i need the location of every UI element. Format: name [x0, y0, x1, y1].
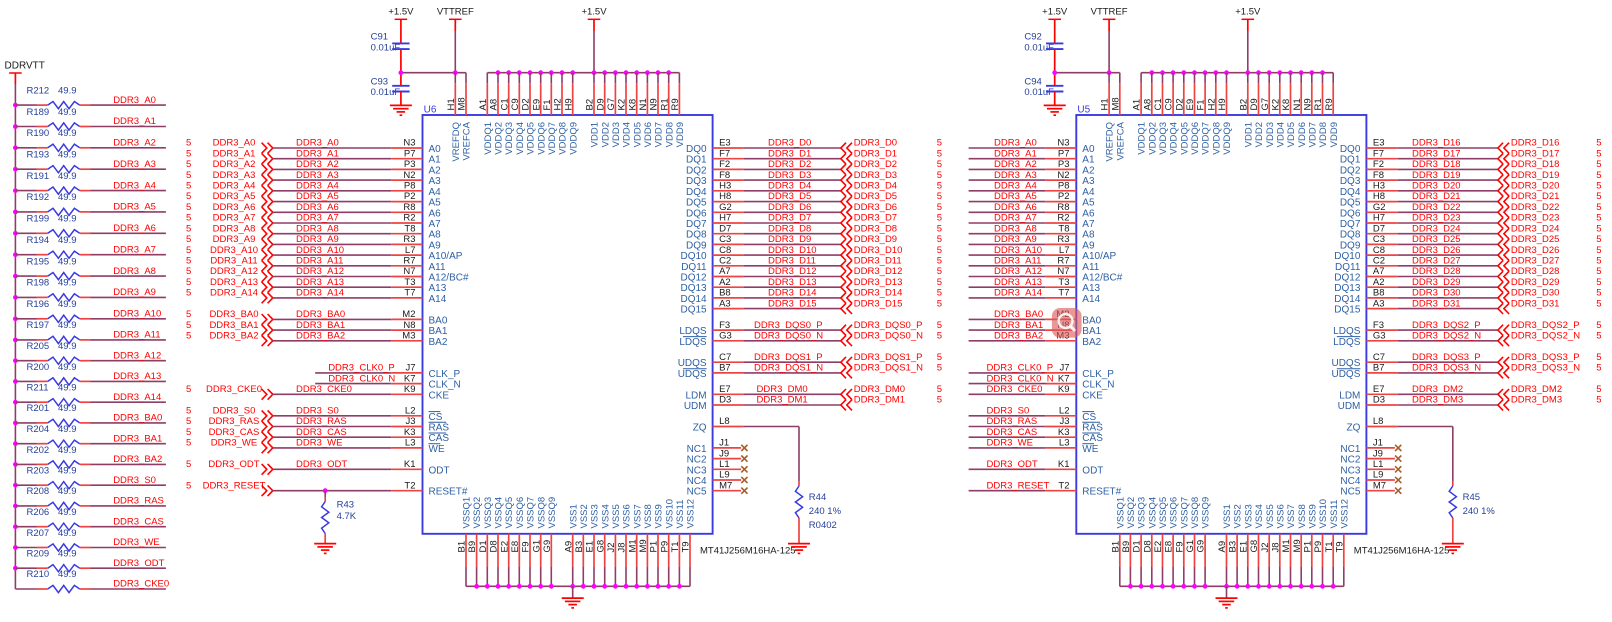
- svg-text:VDDQ6: VDDQ6: [536, 122, 547, 155]
- svg-text:R200: R200: [27, 362, 50, 373]
- svg-text:DDR3_CLK0_P: DDR3_CLK0_P: [987, 363, 1054, 374]
- svg-text:M1: M1: [1281, 539, 1292, 552]
- svg-text:DDR3_DQS2_N: DDR3_DQS2_N: [1511, 331, 1580, 342]
- svg-text:H2: H2: [1206, 98, 1217, 110]
- svg-text:A14: A14: [1082, 294, 1100, 305]
- svg-text:R195: R195: [27, 256, 50, 267]
- svg-text:DQ10: DQ10: [680, 251, 707, 262]
- svg-text:DDR3_DQS0_N: DDR3_DQS0_N: [854, 331, 923, 342]
- svg-text:VDD7: VDD7: [1307, 122, 1318, 147]
- svg-text:A2: A2: [1373, 277, 1385, 288]
- svg-text:5: 5: [186, 213, 191, 224]
- svg-text:R45: R45: [1463, 492, 1480, 503]
- svg-text:DDR3_A7: DDR3_A7: [296, 213, 339, 224]
- svg-text:A6: A6: [1082, 208, 1095, 219]
- svg-text:R44: R44: [809, 492, 826, 503]
- svg-text:DDR3_D10: DDR3_D10: [854, 245, 903, 256]
- svg-text:VSSQ5: VSSQ5: [504, 497, 515, 529]
- svg-text:DDR3_A1: DDR3_A1: [994, 148, 1037, 159]
- svg-text:A9: A9: [563, 541, 574, 553]
- svg-text:DDR3_DM1: DDR3_DM1: [757, 395, 808, 406]
- svg-text:DDR3_A0: DDR3_A0: [296, 138, 339, 149]
- svg-text:5: 5: [186, 223, 191, 234]
- svg-text:CKE: CKE: [429, 390, 450, 401]
- svg-text:5: 5: [186, 234, 191, 245]
- svg-text:L1: L1: [1373, 459, 1384, 470]
- svg-text:ODT: ODT: [1082, 465, 1103, 476]
- svg-text:DQ3: DQ3: [1340, 176, 1361, 187]
- svg-text:P8: P8: [404, 181, 416, 192]
- svg-text:DDR3_A13: DDR3_A13: [994, 277, 1042, 288]
- svg-text:F7: F7: [1373, 148, 1384, 159]
- svg-text:DQ11: DQ11: [1335, 262, 1361, 273]
- svg-text:DDR3_D27: DDR3_D27: [1511, 256, 1560, 267]
- svg-text:K9: K9: [1058, 384, 1070, 395]
- svg-text:DDR3_BA1: DDR3_BA1: [994, 320, 1043, 331]
- svg-text:A0: A0: [429, 144, 442, 155]
- svg-text:VSS2: VSS2: [1233, 504, 1244, 528]
- svg-text:B2: B2: [1238, 99, 1249, 111]
- svg-text:DDR3_A7: DDR3_A7: [994, 213, 1037, 224]
- svg-text:DQ6: DQ6: [686, 208, 707, 219]
- svg-text:VSS8: VSS8: [1297, 504, 1308, 528]
- svg-text:R196: R196: [27, 299, 50, 310]
- svg-text:P9: P9: [1313, 541, 1324, 553]
- svg-text:5: 5: [1596, 288, 1601, 299]
- svg-text:5: 5: [937, 202, 942, 213]
- svg-text:5: 5: [937, 352, 942, 363]
- svg-text:RAS: RAS: [1082, 423, 1103, 434]
- svg-text:DDR3_D31: DDR3_D31: [1412, 298, 1461, 309]
- svg-text:E3: E3: [719, 138, 731, 149]
- svg-text:G1: G1: [531, 540, 542, 553]
- svg-text:DDR3_D13: DDR3_D13: [854, 277, 903, 288]
- svg-text:A11: A11: [429, 262, 446, 273]
- svg-text:F2: F2: [719, 159, 730, 170]
- svg-text:DDR3_BA0: DDR3_BA0: [296, 309, 345, 320]
- svg-text:BA1: BA1: [1082, 326, 1101, 337]
- svg-text:T9: T9: [681, 541, 692, 552]
- svg-text:M7: M7: [719, 480, 732, 491]
- svg-text:DDR3_ODT: DDR3_ODT: [113, 558, 164, 569]
- svg-text:N3: N3: [403, 138, 415, 149]
- svg-text:DDR3_D28: DDR3_D28: [1412, 266, 1461, 277]
- svg-text:UDQS: UDQS: [678, 358, 707, 369]
- svg-text:+1.5V: +1.5V: [388, 6, 414, 17]
- svg-text:DDR3_A4: DDR3_A4: [213, 181, 256, 192]
- svg-text:U5: U5: [1077, 105, 1090, 116]
- svg-text:DDR3_RAS: DDR3_RAS: [209, 416, 260, 427]
- svg-text:M3: M3: [402, 331, 415, 342]
- svg-text:DDR3_D3: DDR3_D3: [854, 170, 897, 181]
- svg-text:DDR3_D30: DDR3_D30: [1412, 288, 1461, 299]
- svg-text:49.9: 49.9: [58, 341, 77, 352]
- svg-text:5: 5: [1596, 223, 1601, 234]
- svg-text:DDR3_CLK0_N: DDR3_CLK0_N: [987, 373, 1054, 384]
- svg-text:K1: K1: [1058, 459, 1070, 470]
- svg-text:J2: J2: [1260, 542, 1271, 552]
- svg-text:NC3: NC3: [1340, 465, 1360, 476]
- svg-text:R193: R193: [27, 150, 50, 161]
- svg-text:5: 5: [937, 363, 942, 374]
- svg-text:R206: R206: [27, 507, 50, 518]
- svg-text:VSSQ2: VSSQ2: [1126, 497, 1137, 529]
- svg-text:N2: N2: [403, 170, 415, 181]
- svg-text:VDDQ1: VDDQ1: [1137, 122, 1148, 155]
- svg-text:T8: T8: [1058, 223, 1069, 234]
- svg-text:VSSQ1: VSSQ1: [1115, 497, 1126, 529]
- svg-text:DQ2: DQ2: [1340, 165, 1361, 176]
- svg-text:DDR3_D9: DDR3_D9: [768, 234, 811, 245]
- svg-text:R8: R8: [403, 202, 415, 213]
- svg-text:VDD2: VDD2: [600, 122, 611, 147]
- svg-text:DDR3_A1: DDR3_A1: [113, 116, 156, 127]
- svg-text:5: 5: [186, 148, 191, 159]
- svg-text:R1: R1: [1313, 98, 1324, 110]
- svg-text:DDR3_D19: DDR3_D19: [1511, 170, 1560, 181]
- svg-text:LDM: LDM: [685, 390, 706, 401]
- svg-text:DQ13: DQ13: [1334, 283, 1361, 294]
- svg-text:J1: J1: [1373, 438, 1383, 449]
- svg-text:C3: C3: [719, 234, 731, 245]
- svg-text:VDDQ5: VDDQ5: [526, 122, 537, 155]
- svg-text:49.9: 49.9: [58, 320, 77, 331]
- svg-text:N3: N3: [1057, 138, 1069, 149]
- svg-text:A8: A8: [1082, 230, 1095, 241]
- svg-text:DDR3_D12: DDR3_D12: [854, 266, 903, 277]
- svg-text:E1: E1: [1238, 541, 1249, 553]
- svg-text:DDR3_D23: DDR3_D23: [1511, 213, 1560, 224]
- svg-text:P7: P7: [404, 148, 416, 159]
- svg-text:L3: L3: [1059, 438, 1070, 449]
- svg-text:VDDQ2: VDDQ2: [494, 122, 505, 155]
- svg-text:C8: C8: [1373, 245, 1385, 256]
- svg-text:DDR3_A8: DDR3_A8: [213, 223, 256, 234]
- svg-text:DDR3_D1: DDR3_D1: [768, 148, 811, 159]
- svg-text:R7: R7: [403, 256, 415, 267]
- svg-text:VSS9: VSS9: [654, 504, 665, 528]
- svg-text:L8: L8: [1373, 416, 1384, 427]
- svg-text:R208: R208: [27, 486, 50, 497]
- svg-text:P8: P8: [1058, 181, 1070, 192]
- svg-text:VDDQ3: VDDQ3: [1158, 122, 1169, 155]
- svg-text:DDR3_D12: DDR3_D12: [768, 266, 817, 277]
- svg-text:M2: M2: [402, 309, 415, 320]
- svg-text:A9: A9: [429, 240, 442, 251]
- svg-text:DDR3_D27: DDR3_D27: [1412, 256, 1461, 267]
- svg-text:K8: K8: [1281, 99, 1292, 111]
- svg-text:49.9: 49.9: [58, 466, 77, 477]
- svg-text:VDD3: VDD3: [611, 122, 622, 147]
- svg-text:49.9: 49.9: [58, 569, 77, 580]
- svg-text:RESET#: RESET#: [1082, 487, 1121, 498]
- svg-text:5: 5: [1596, 395, 1601, 406]
- svg-text:B8: B8: [1373, 288, 1385, 299]
- svg-text:5: 5: [937, 245, 942, 256]
- svg-text:49.9: 49.9: [58, 445, 77, 456]
- svg-text:DDR3_A1: DDR3_A1: [213, 148, 256, 159]
- svg-text:5: 5: [186, 138, 191, 149]
- svg-text:B3: B3: [1228, 541, 1239, 553]
- svg-text:5: 5: [1596, 159, 1601, 170]
- svg-text:5: 5: [1596, 331, 1601, 342]
- svg-text:J2: J2: [606, 542, 617, 552]
- svg-text:VSSQ9: VSSQ9: [547, 497, 558, 529]
- svg-text:DQ11: DQ11: [681, 262, 707, 273]
- svg-text:VSSQ1: VSSQ1: [462, 497, 473, 529]
- svg-text:LDQS: LDQS: [679, 337, 707, 348]
- svg-text:R204: R204: [27, 424, 50, 435]
- svg-text:VDD9: VDD9: [1329, 122, 1340, 147]
- svg-text:CS: CS: [1082, 412, 1096, 423]
- svg-text:P1: P1: [649, 541, 660, 553]
- svg-text:DDR3_RESET: DDR3_RESET: [987, 480, 1050, 491]
- svg-text:H3: H3: [719, 181, 731, 192]
- svg-text:DDR3_A14: DDR3_A14: [210, 288, 258, 299]
- svg-text:DDR3_A4: DDR3_A4: [296, 181, 339, 192]
- svg-text:R8: R8: [1057, 202, 1069, 213]
- svg-text:DDR3_A6: DDR3_A6: [296, 202, 339, 213]
- svg-text:RAS: RAS: [429, 423, 450, 434]
- svg-text:VDD1: VDD1: [1243, 122, 1254, 147]
- svg-text:DDR3_D29: DDR3_D29: [1412, 277, 1461, 288]
- svg-text:G3: G3: [719, 331, 732, 342]
- svg-text:H3: H3: [1373, 181, 1385, 192]
- svg-text:5: 5: [186, 181, 191, 192]
- svg-text:P7: P7: [1058, 148, 1070, 159]
- svg-text:B1: B1: [1110, 541, 1121, 553]
- svg-text:DDR3_A6: DDR3_A6: [994, 202, 1037, 213]
- svg-text:DDR3_D6: DDR3_D6: [854, 202, 897, 213]
- svg-text:DQ7: DQ7: [686, 219, 707, 230]
- svg-text:DDR3_RESET: DDR3_RESET: [203, 480, 266, 491]
- svg-text:H2: H2: [553, 98, 564, 110]
- svg-text:DDR3_D22: DDR3_D22: [1511, 202, 1560, 213]
- svg-text:G9: G9: [542, 540, 553, 553]
- svg-text:49.9: 49.9: [58, 235, 77, 246]
- svg-text:5: 5: [1596, 363, 1601, 374]
- svg-text:F3: F3: [719, 320, 730, 331]
- svg-text:DDR3_A2: DDR3_A2: [296, 159, 339, 170]
- svg-text:5: 5: [1596, 320, 1601, 331]
- svg-text:CLK_P: CLK_P: [429, 369, 461, 380]
- svg-text:C2: C2: [1373, 256, 1385, 267]
- svg-text:N2: N2: [1057, 170, 1069, 181]
- svg-text:B7: B7: [719, 363, 731, 374]
- svg-text:5: 5: [186, 480, 191, 491]
- svg-text:T2: T2: [404, 480, 415, 491]
- svg-text:P3: P3: [1058, 159, 1070, 170]
- svg-text:E7: E7: [1373, 384, 1385, 395]
- svg-text:G2: G2: [719, 202, 732, 213]
- svg-text:NC2: NC2: [687, 455, 707, 466]
- svg-text:D2: D2: [1174, 98, 1185, 110]
- svg-text:DDR3_BA1: DDR3_BA1: [296, 320, 345, 331]
- svg-text:E7: E7: [719, 384, 731, 395]
- svg-text:B2: B2: [585, 99, 596, 111]
- svg-text:5: 5: [1596, 191, 1601, 202]
- svg-text:VSSQ7: VSSQ7: [526, 497, 537, 529]
- svg-text:R210: R210: [27, 569, 50, 580]
- svg-text:DQ8: DQ8: [686, 230, 707, 241]
- svg-text:VSSQ8: VSSQ8: [536, 497, 547, 529]
- svg-text:DDR3_D26: DDR3_D26: [1412, 245, 1461, 256]
- svg-text:DDR3_D8: DDR3_D8: [768, 223, 811, 234]
- svg-text:VDDQ3: VDDQ3: [504, 122, 515, 155]
- svg-text:A5: A5: [1082, 198, 1095, 209]
- svg-text:DDR3_D11: DDR3_D11: [854, 256, 902, 267]
- svg-text:VDD6: VDD6: [1297, 122, 1308, 147]
- svg-text:DDR3_DQS2_N: DDR3_DQS2_N: [1412, 331, 1481, 342]
- svg-text:G1: G1: [1185, 540, 1196, 553]
- svg-text:DDR3_CKE0: DDR3_CKE0: [296, 384, 352, 395]
- svg-text:R9: R9: [670, 98, 681, 110]
- svg-text:VSS8: VSS8: [643, 504, 654, 528]
- svg-text:R201: R201: [27, 403, 50, 414]
- svg-text:UDM: UDM: [684, 401, 707, 412]
- svg-text:CS: CS: [429, 412, 443, 423]
- svg-text:DDR3_A0: DDR3_A0: [994, 138, 1037, 149]
- svg-text:DDR3_A4: DDR3_A4: [113, 180, 156, 191]
- svg-text:R189: R189: [27, 107, 50, 118]
- svg-text:VDD2: VDD2: [1254, 122, 1265, 147]
- svg-text:49.9: 49.9: [58, 171, 77, 182]
- svg-text:UDQS: UDQS: [1331, 358, 1360, 369]
- svg-text:5: 5: [1596, 277, 1601, 288]
- svg-text:VSSQ9: VSSQ9: [1201, 497, 1212, 529]
- svg-text:BA0: BA0: [1082, 315, 1101, 326]
- svg-text:DDR3_D2: DDR3_D2: [768, 159, 811, 170]
- svg-text:5: 5: [1596, 234, 1601, 245]
- svg-text:DDR3_D23: DDR3_D23: [1412, 213, 1461, 224]
- svg-text:LDM: LDM: [1339, 390, 1360, 401]
- svg-text:J7: J7: [405, 363, 415, 374]
- svg-text:BA2: BA2: [1082, 337, 1101, 348]
- svg-text:F9: F9: [1174, 541, 1185, 552]
- svg-text:T7: T7: [404, 288, 415, 299]
- svg-text:R211: R211: [27, 383, 49, 394]
- svg-text:R212: R212: [27, 85, 50, 96]
- svg-text:VSSQ3: VSSQ3: [483, 497, 494, 529]
- svg-text:T3: T3: [404, 277, 415, 288]
- svg-text:DDR3_D6: DDR3_D6: [768, 202, 811, 213]
- svg-text:J8: J8: [617, 542, 628, 552]
- svg-text:A9: A9: [1217, 541, 1228, 553]
- svg-text:DDR3_A6: DDR3_A6: [213, 202, 256, 213]
- svg-text:DDR3_CLK0_P: DDR3_CLK0_P: [328, 363, 395, 374]
- svg-text:DDR3_A0: DDR3_A0: [113, 95, 156, 106]
- svg-text:C9: C9: [1164, 98, 1175, 110]
- svg-text:C8: C8: [719, 245, 731, 256]
- svg-text:DQ1: DQ1: [686, 155, 707, 166]
- svg-text:49.9: 49.9: [58, 278, 77, 289]
- svg-text:E2: E2: [1153, 541, 1164, 553]
- svg-text:A7: A7: [1082, 219, 1095, 230]
- svg-text:5: 5: [186, 191, 191, 202]
- svg-text:LDQS: LDQS: [1333, 337, 1361, 348]
- svg-text:DDR3_BA2: DDR3_BA2: [296, 331, 345, 342]
- svg-text:DDR3_DQS1_N: DDR3_DQS1_N: [854, 363, 923, 374]
- svg-text:DDR3_A11: DDR3_A11: [210, 256, 257, 267]
- svg-text:DDR3_CAS: DDR3_CAS: [113, 516, 164, 527]
- svg-text:VDD3: VDD3: [1265, 122, 1276, 147]
- svg-text:DDR3_CAS: DDR3_CAS: [987, 427, 1038, 438]
- svg-text:DDR3_A5: DDR3_A5: [296, 191, 339, 202]
- svg-text:5: 5: [1596, 352, 1601, 363]
- svg-text:VSS4: VSS4: [600, 504, 611, 528]
- svg-text:VSSQ3: VSSQ3: [1137, 497, 1148, 529]
- svg-text:DQ9: DQ9: [1340, 240, 1361, 251]
- svg-text:H1: H1: [446, 98, 457, 110]
- svg-text:DDR3_A1: DDR3_A1: [296, 148, 339, 159]
- svg-text:RESET#: RESET#: [429, 487, 468, 498]
- svg-text:49.9: 49.9: [58, 256, 77, 267]
- svg-text:E2: E2: [499, 541, 510, 553]
- svg-text:DQ15: DQ15: [1334, 305, 1361, 316]
- svg-text:DDR3_D16: DDR3_D16: [1412, 138, 1461, 149]
- svg-text:NC1: NC1: [687, 444, 707, 455]
- svg-text:A2: A2: [719, 277, 731, 288]
- svg-text:DQ10: DQ10: [1334, 251, 1361, 262]
- svg-text:M8: M8: [457, 97, 468, 110]
- svg-text:DDR3_D7: DDR3_D7: [768, 213, 811, 224]
- svg-text:A3: A3: [1373, 298, 1385, 309]
- svg-text:DDR3_D18: DDR3_D18: [1511, 159, 1560, 170]
- svg-text:VDD5: VDD5: [1286, 122, 1297, 147]
- svg-text:P2: P2: [1058, 191, 1070, 202]
- svg-text:N7: N7: [403, 266, 415, 277]
- svg-text:DDR3_D30: DDR3_D30: [1511, 288, 1560, 299]
- svg-text:DDR3_D17: DDR3_D17: [1412, 148, 1461, 159]
- svg-text:DDR3_BA0: DDR3_BA0: [994, 309, 1043, 320]
- svg-text:DDR3_A13: DDR3_A13: [210, 277, 258, 288]
- svg-text:L7: L7: [1059, 245, 1070, 256]
- svg-text:C1: C1: [499, 98, 510, 110]
- svg-text:BA1: BA1: [429, 326, 448, 337]
- svg-text:DDR3_D20: DDR3_D20: [1412, 181, 1461, 192]
- svg-text:G7: G7: [606, 98, 617, 111]
- svg-text:K7: K7: [1058, 373, 1070, 384]
- svg-text:K2: K2: [617, 99, 628, 111]
- svg-text:J9: J9: [1373, 448, 1383, 459]
- svg-text:F1: F1: [542, 99, 553, 110]
- svg-text:H8: H8: [1373, 191, 1385, 202]
- svg-text:DDR3_BA1: DDR3_BA1: [113, 433, 162, 444]
- svg-text:DDR3_A3: DDR3_A3: [213, 170, 256, 181]
- svg-text:DDR3_D5: DDR3_D5: [854, 191, 897, 202]
- svg-text:5: 5: [937, 256, 942, 267]
- svg-text:49.9: 49.9: [58, 486, 77, 497]
- svg-text:CKE: CKE: [1082, 390, 1103, 401]
- svg-text:L1: L1: [719, 459, 730, 470]
- svg-text:DQ5: DQ5: [686, 198, 707, 209]
- svg-text:R199: R199: [27, 214, 50, 225]
- svg-text:A1: A1: [429, 155, 442, 166]
- svg-text:DDR3_DM2: DDR3_DM2: [1511, 384, 1562, 395]
- svg-text:VDDQ5: VDDQ5: [1179, 122, 1190, 155]
- svg-text:DDR3_CKE0: DDR3_CKE0: [987, 384, 1043, 395]
- svg-text:DDR3_DQS3_P: DDR3_DQS3_P: [1412, 352, 1481, 363]
- svg-text:5: 5: [937, 288, 942, 299]
- svg-text:VSS1: VSS1: [568, 504, 579, 528]
- svg-text:A13: A13: [429, 283, 447, 294]
- svg-text:DDR3_A10: DDR3_A10: [210, 245, 258, 256]
- svg-text:DDR3_D28: DDR3_D28: [1511, 266, 1560, 277]
- svg-text:VDDQ7: VDDQ7: [547, 122, 558, 155]
- svg-text:VSSQ2: VSSQ2: [472, 497, 483, 529]
- svg-text:B1: B1: [457, 541, 468, 553]
- svg-text:DDR3_CLK0_N: DDR3_CLK0_N: [328, 373, 395, 384]
